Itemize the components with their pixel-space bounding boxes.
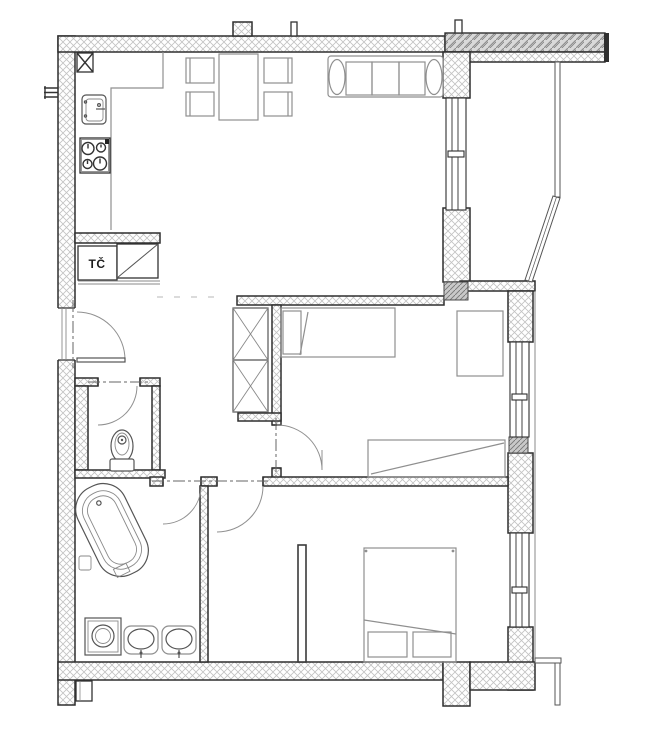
bed-pillow [368,632,407,657]
dining-chair [186,92,214,116]
floor-plan-canvas: TČ [0,0,656,738]
door-wc [98,378,140,425]
wall-wardrobe-stub [238,413,281,421]
slab-end-cap [604,33,609,62]
dining-chair [186,58,214,83]
washing-machine-icon [85,618,121,655]
wall-exterior-left [58,36,75,705]
closet-front-edge [78,281,160,284]
door-entrance [77,312,125,362]
heat-pump-label: TČ [89,256,106,271]
exterior-step [76,681,92,701]
wall-hall-south-c [263,477,508,486]
wardrobe [233,308,268,412]
bed-single-1 [281,308,395,357]
wall-wc-east [152,386,160,470]
kitchen-counter [111,52,163,230]
bed-pillow [413,632,451,657]
window-bedroom1 [510,342,529,437]
slab-top-right [445,33,605,52]
balcony2-railing-right [555,663,560,705]
dining-chair [264,92,292,116]
bed-double [364,548,456,662]
floor-plan: TČ [0,0,656,738]
wall-stub-top-1 [233,22,252,36]
washbasin-icon [124,626,158,658]
wall-wc-shaft [75,386,88,470]
balcony [525,62,561,705]
wall-right-seg2 [508,453,533,533]
wall-right-seg1 [508,291,533,342]
door-bedroom1 [272,425,322,470]
dining-chair [264,58,292,83]
wall-bedroom1-west [272,305,281,425]
wall-bathroom-east [200,486,208,662]
bed-fold-line [371,443,504,474]
door-bedroom2 [217,477,263,532]
column-right-wall [509,437,528,453]
column-balcony-corner [444,282,468,300]
wall-exterior-bottom [58,662,443,680]
heat-pump-closet: TČ [78,244,160,284]
wall-bedroom2-partition [298,545,306,662]
dining-table [219,54,258,120]
desk [457,311,503,376]
bedroom2-furniture [364,548,456,662]
balcony-railing-diagonal-line [529,197,557,281]
balcony2-railing-top [535,658,561,663]
wall-wc-north-b [140,378,160,386]
bathtub-icon [68,475,157,584]
utility-connection-icon [44,86,58,99]
kitchen-sink-icon [82,95,106,124]
wall-livingroom-right-lower [443,208,470,282]
balcony-railing-right [555,62,560,197]
wall-bottom-step-column [443,662,470,706]
sofa-armrest [329,60,345,95]
bathtub-step [79,556,91,570]
bed-post [452,550,455,553]
wall-stub-top-2 [291,22,297,36]
window-livingroom [446,98,466,210]
door-bathroom [163,477,201,524]
wall-exterior-top [58,36,445,52]
windows [446,98,535,658]
wall-balcony-south [460,281,535,291]
wall-bedroom1-north [237,296,444,305]
kitchen [77,52,163,230]
sofa-armrest [426,60,442,95]
wall-stub-top-3 [455,20,462,33]
bedroom1-furniture [281,308,505,477]
wall-bottom-right [470,662,535,690]
washbasin-icon [162,626,196,658]
stove-icon [80,138,110,173]
wall-livingroom-right-upper [443,52,470,98]
sofa [328,56,443,97]
window-bedroom2 [510,533,529,627]
toilet-icon [110,430,134,471]
bathroom-fixtures [68,475,196,658]
bed-post [365,550,368,553]
dining-set [186,54,292,120]
wall-niche-top [75,233,160,243]
bed-pillow [283,311,301,354]
